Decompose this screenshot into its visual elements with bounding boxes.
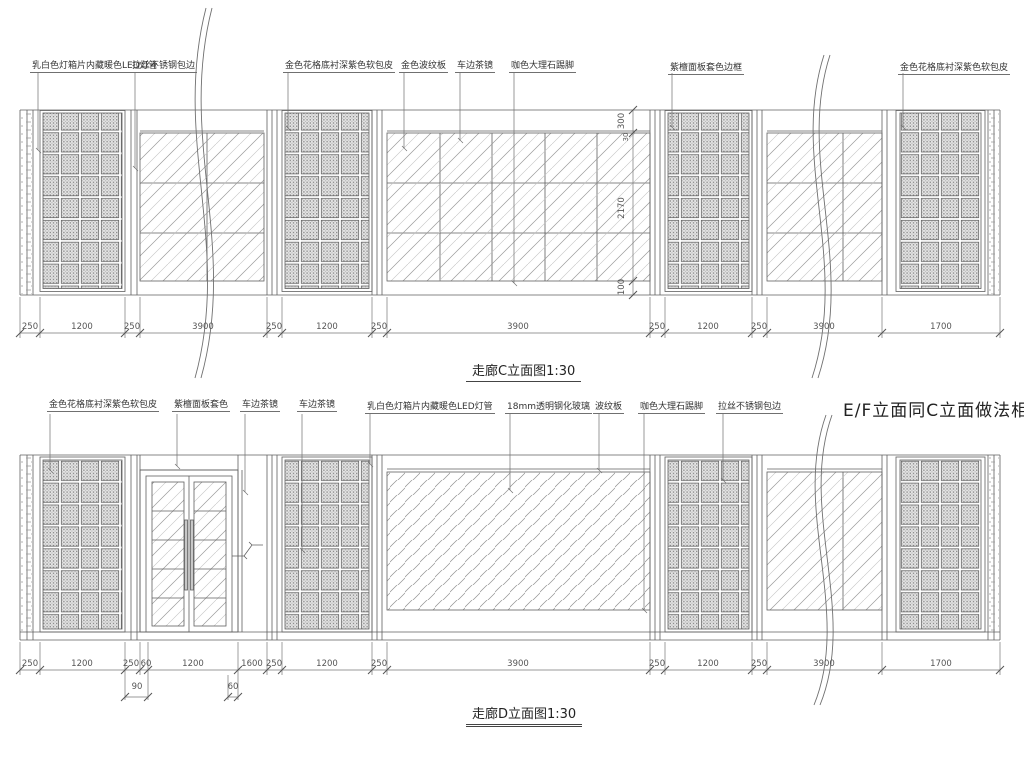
dim-top-6: 250 <box>371 322 387 332</box>
label-wave-board-bottom: 波纹板 <box>593 402 624 414</box>
dim-top-0: 250 <box>22 322 38 332</box>
dim-bot-7: 1200 <box>316 659 338 669</box>
z-break-symbol <box>232 542 263 559</box>
dim-top-10: 250 <box>751 322 767 332</box>
top-elevation <box>20 110 1000 295</box>
subdim-door-stile: 60 <box>228 682 239 692</box>
dim-top-11: 3900 <box>813 322 835 332</box>
label-marble-skirting-bottom: 咖色大理石踢脚 <box>638 402 705 414</box>
dim-top-9: 1200 <box>697 322 719 332</box>
dim-bot-13: 3900 <box>813 659 835 669</box>
vdim-glass-height: 2170 <box>617 197 627 219</box>
dim-top-1: 1200 <box>71 322 93 332</box>
label-sandalwood-panel-door: 紫檀面板套色 <box>172 400 230 412</box>
title-elevation-d: 走廊D立面图1:30 <box>466 703 582 727</box>
dim-bot-0: 250 <box>22 659 38 669</box>
cad-elevation-sheet: 乳白色灯箱片内藏暖色LED灯管 拉丝不锈钢包边 金色花格底衬深紫色软包皮 金色波… <box>0 0 1024 768</box>
label-led-lightbox-bottom: 乳白色灯箱片内藏暖色LED灯管 <box>365 402 495 414</box>
label-gold-lattice-right: 金色花格底衬深紫色软包皮 <box>898 63 1010 75</box>
dim-bot-9: 3900 <box>507 659 529 669</box>
vdim-top-band: 300 <box>617 113 627 129</box>
dim-bot-11: 1200 <box>697 659 719 669</box>
dim-bot-2: 250 <box>123 659 139 669</box>
label-stainless-edge-top: 拉丝不锈钢包边 <box>130 61 197 73</box>
dim-bot-1: 1200 <box>71 659 93 669</box>
dim-bot-10: 250 <box>649 659 665 669</box>
label-tempered-glass: 18mm透明钢化玻璃 <box>505 402 592 414</box>
dim-bot-8: 250 <box>371 659 387 669</box>
elevation-linework <box>0 0 1024 768</box>
dim-top-12: 1700 <box>930 322 952 332</box>
note-ef-same-as-c: E/F立面同C立面做法相同 <box>843 396 1024 421</box>
label-tea-mirror-door-1: 车边茶镜 <box>240 400 280 412</box>
dim-top-8: 250 <box>649 322 665 332</box>
dim-top-4: 250 <box>266 322 282 332</box>
vdim-skirting-height: 100 <box>617 279 627 295</box>
label-gold-wave-board: 金色波纹板 <box>399 61 448 73</box>
dim-bot-14: 1700 <box>930 659 952 669</box>
dim-top-2: 250 <box>124 322 140 332</box>
dim-top-7: 3900 <box>507 322 529 332</box>
dim-bot-5: 1600 <box>241 659 263 669</box>
dim-bot-12: 250 <box>751 659 767 669</box>
label-gold-lattice-bottom: 金色花格底衬深紫色软包皮 <box>47 400 159 412</box>
title-elevation-c: 走廊C立面图1:30 <box>466 360 581 382</box>
label-tea-mirror-door-2: 车边茶镜 <box>297 400 337 412</box>
subdim-door-frame: 90 <box>132 682 143 692</box>
label-beveled-tea-mirror-top: 车边茶镜 <box>455 61 495 73</box>
dim-top-5: 1200 <box>316 322 338 332</box>
dim-top-3: 3900 <box>192 322 214 332</box>
dim-bot-3: 60 <box>141 659 152 669</box>
label-stainless-edge-bottom: 拉丝不锈钢包边 <box>716 402 783 414</box>
label-marble-skirting-top: 咖色大理石踢脚 <box>509 61 576 73</box>
vdim-top-trim: 30 <box>622 133 630 142</box>
label-gold-lattice-left: 金色花格底衬深紫色软包皮 <box>283 61 395 73</box>
dim-bot-4: 1200 <box>182 659 204 669</box>
dim-bot-6: 250 <box>266 659 282 669</box>
label-sandalwood-frame-top: 紫檀面板套色边框 <box>668 63 744 75</box>
double-door <box>140 470 238 632</box>
